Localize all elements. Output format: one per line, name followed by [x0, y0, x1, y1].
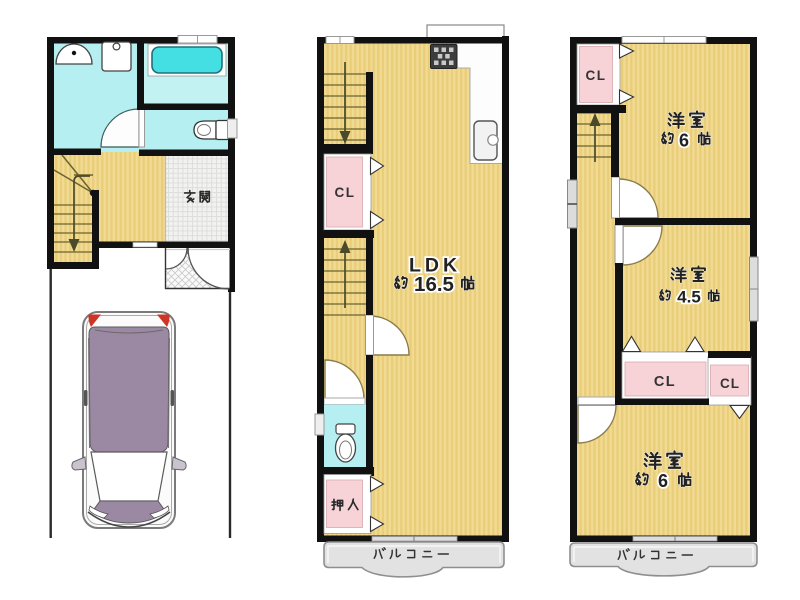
svg-text:16.5: 16.5	[414, 273, 454, 296]
svg-text:6: 6	[658, 471, 668, 491]
svg-text:4.5: 4.5	[677, 288, 701, 307]
svg-text:CL: CL	[654, 374, 676, 390]
svg-text:CL: CL	[335, 185, 356, 200]
svg-text:6: 6	[679, 131, 689, 151]
svg-text:CL: CL	[720, 376, 740, 391]
svg-text:CL: CL	[586, 68, 607, 83]
